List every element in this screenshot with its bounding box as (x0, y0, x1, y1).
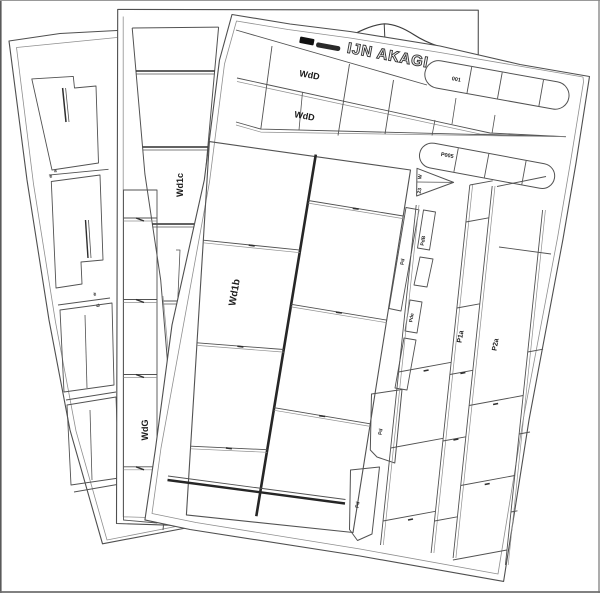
svg-text:Wd1c: Wd1c (175, 173, 185, 197)
svg-text:WdG: WdG (140, 420, 150, 441)
svg-text:Pd: Pd (378, 428, 385, 435)
svg-text:Pd: Pd (355, 501, 362, 508)
svg-text:Pd: Pd (400, 258, 407, 265)
